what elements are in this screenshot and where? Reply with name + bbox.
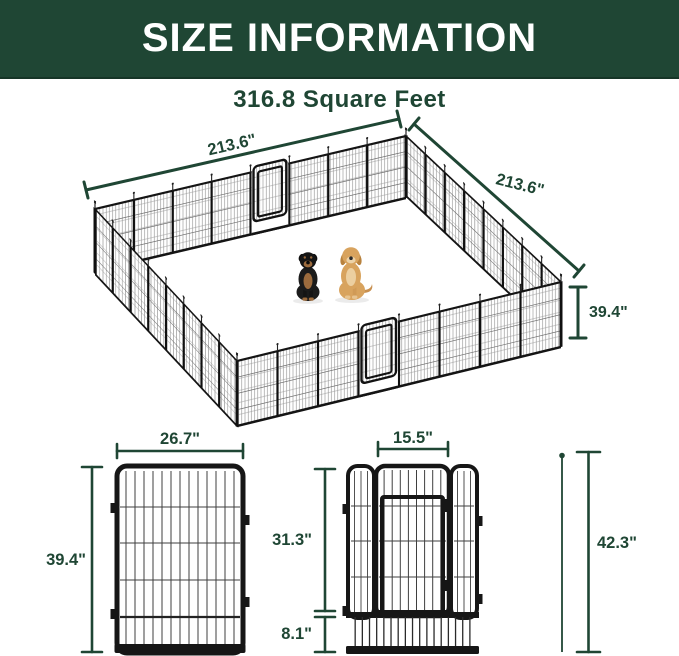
golden-retriever-illustration bbox=[335, 247, 372, 303]
bottom-height-label: 8.1" bbox=[268, 625, 312, 643]
door-panel-diagram bbox=[315, 442, 483, 654]
pen-height-label: 39.4" bbox=[589, 304, 628, 322]
door-height-label: 31.3" bbox=[264, 531, 312, 549]
dimension-pen-height-line bbox=[570, 287, 586, 338]
rottweiler-illustration bbox=[293, 252, 323, 303]
panel-height-label: 39.4" bbox=[36, 551, 86, 569]
door-height-dimension bbox=[315, 469, 335, 611]
pen-wall-front bbox=[236, 274, 562, 427]
bottom-grill-bars bbox=[355, 617, 470, 646]
door-latch bbox=[441, 499, 451, 512]
bottom-height-dimension bbox=[315, 617, 335, 652]
area-label: 316.8 Square Feet bbox=[0, 86, 679, 114]
ground-stake-illustration bbox=[559, 453, 565, 652]
total-height-label: 42.3" bbox=[597, 534, 637, 552]
panel-diagram bbox=[82, 444, 250, 653]
size-information-infographic: SIZE INFORMATION bbox=[0, 0, 679, 656]
door-width-label: 15.5" bbox=[363, 429, 463, 447]
panel-width-label: 26.7" bbox=[130, 430, 230, 448]
door-hinge bbox=[441, 580, 450, 591]
